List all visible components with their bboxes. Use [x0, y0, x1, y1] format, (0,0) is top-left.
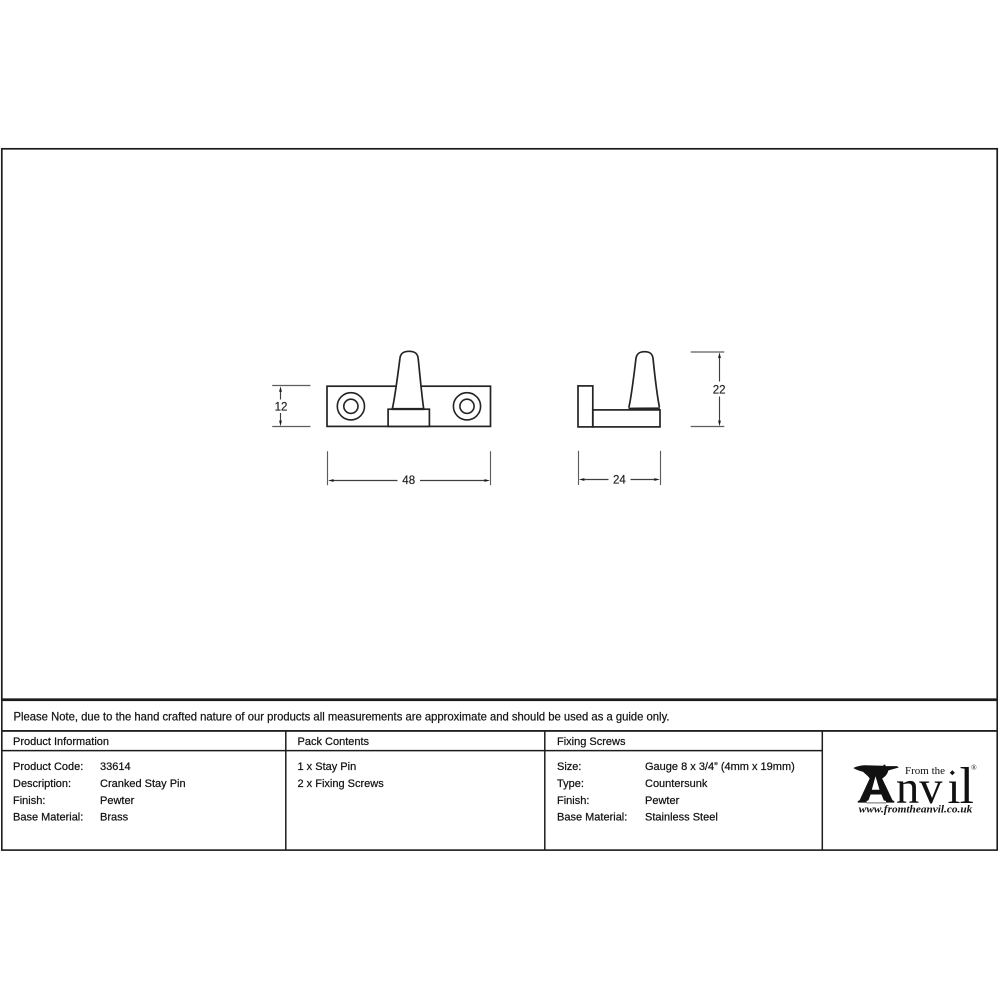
svg-text:12: 12: [275, 401, 288, 413]
svg-text:2 x Fixing Screws: 2 x Fixing Screws: [298, 778, 385, 790]
svg-text:Stainless Steel: Stainless Steel: [645, 812, 718, 824]
svg-text:48: 48: [402, 475, 415, 487]
svg-text:Pack Contents: Pack Contents: [298, 736, 370, 748]
svg-text:Brass: Brass: [100, 812, 129, 824]
svg-text:Type:: Type:: [557, 778, 584, 790]
svg-text:www.fromtheanvil.co.uk: www.fromtheanvil.co.uk: [859, 803, 973, 815]
svg-text:Pewter: Pewter: [100, 795, 135, 807]
svg-text:22: 22: [713, 384, 726, 396]
svg-text:Countersunk: Countersunk: [645, 778, 708, 790]
svg-text:®: ®: [971, 763, 977, 772]
svg-text:Fixing Screws: Fixing Screws: [557, 736, 626, 748]
svg-text:Finish:: Finish:: [13, 795, 45, 807]
svg-text:1 x Stay Pin: 1 x Stay Pin: [298, 761, 357, 773]
svg-text:Pewter: Pewter: [645, 795, 680, 807]
svg-text:Please Note, due to the hand c: Please Note, due to the hand crafted nat…: [14, 711, 670, 724]
svg-text:Gauge 8 x 3/4” (4mm x 19mm): Gauge 8 x 3/4” (4mm x 19mm): [645, 761, 795, 773]
svg-text:Finish:: Finish:: [557, 795, 589, 807]
svg-text:Size:: Size:: [557, 761, 581, 773]
svg-text:From the: From the: [905, 766, 946, 777]
svg-text:Product Information: Product Information: [13, 736, 109, 748]
svg-text:Cranked Stay Pin: Cranked Stay Pin: [100, 778, 186, 790]
svg-text:Description:: Description:: [13, 778, 71, 790]
svg-text:33614: 33614: [100, 761, 131, 773]
svg-text:24: 24: [613, 475, 626, 487]
svg-text:Product Code:: Product Code:: [13, 761, 83, 773]
svg-text:Base Material:: Base Material:: [13, 812, 83, 824]
svg-text:Base Material:: Base Material:: [557, 812, 627, 824]
